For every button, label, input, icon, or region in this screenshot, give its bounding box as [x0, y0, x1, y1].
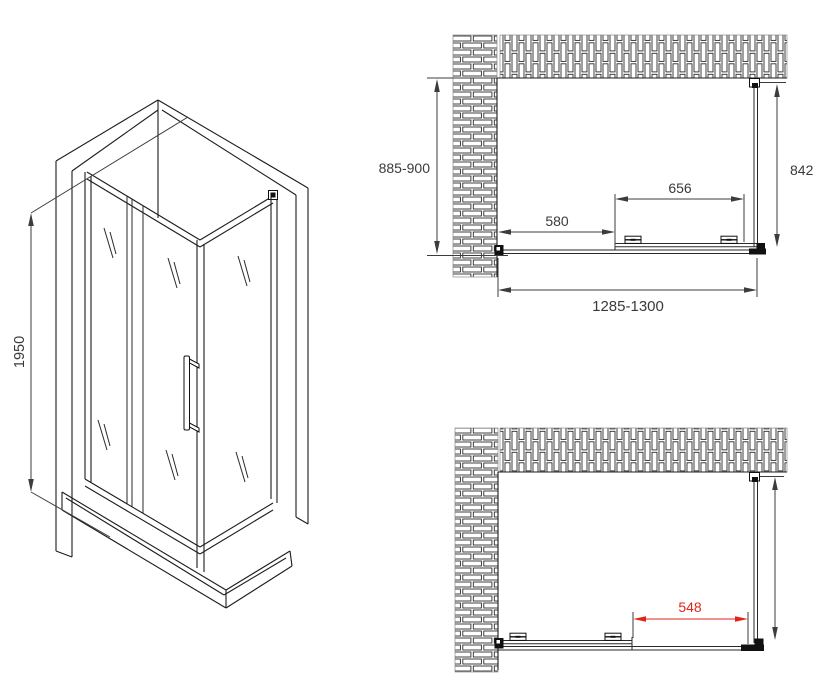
tray-right-cap	[290, 551, 292, 566]
overall-width-dimension-label: 1285-1300	[592, 298, 664, 315]
handle-bar	[184, 356, 190, 430]
top-wall-hatch	[500, 428, 787, 472]
arrow-up-icon	[774, 84, 780, 97]
roller-icon	[625, 236, 641, 243]
left-wall-top-outer-edge	[56, 100, 158, 161]
shower-tray	[62, 492, 292, 608]
side-glass-dimension-label: 842	[790, 162, 814, 178]
tray-front-bottom	[62, 510, 226, 608]
arrow-down-icon	[28, 479, 34, 492]
plan-view-door-closed: 885-900 842 656 580	[379, 35, 814, 315]
dimension-side-glass-unlabeled	[760, 477, 784, 641]
reflection-mark	[98, 420, 107, 450]
left-wall-hatch	[453, 35, 497, 277]
wall-bracket-notch	[497, 247, 501, 251]
dimension-side-glass: 842	[760, 83, 814, 248]
arrow-right-icon	[731, 196, 744, 202]
roller-icon	[510, 633, 526, 640]
dimension-opening-width: 548	[633, 599, 748, 644]
opening-width-dimension-label: 548	[678, 599, 702, 615]
arrow-right-icon	[735, 616, 748, 622]
arrow-down-icon	[774, 234, 780, 247]
roller-axle	[631, 239, 636, 241]
bottom-rails	[85, 479, 273, 554]
left-wall-hatch	[455, 428, 498, 672]
wall-bracket-notch	[497, 640, 501, 644]
arrow-left-icon	[498, 287, 511, 293]
depth-dimension-label: 885-900	[379, 160, 431, 176]
return-bottom-rail-inner	[200, 510, 273, 554]
arrow-left-icon	[633, 616, 646, 622]
arrow-down-icon	[434, 241, 440, 254]
back-walls	[56, 100, 308, 557]
right-wall-top-inner-edge	[162, 110, 296, 195]
corner-bracket-upper	[755, 639, 764, 646]
top-wall-hatch	[500, 35, 787, 78]
arrow-right-icon	[744, 287, 757, 293]
arrow-up-icon	[28, 213, 34, 226]
frame-posts	[85, 172, 277, 572]
arrow-left-icon	[498, 229, 511, 235]
handle-top-mount	[190, 359, 200, 368]
corner-bracket-upper	[757, 243, 766, 249]
door-width-dimension-label: 656	[668, 180, 692, 196]
return-top-rail-inner	[200, 203, 273, 247]
side-glass-panel	[750, 79, 760, 248]
technical-drawing-canvas: 1950	[0, 0, 827, 681]
roller-icon	[721, 236, 737, 243]
arrow-up-icon	[772, 477, 778, 490]
tray-right-bottom	[226, 566, 292, 608]
roller-icon	[605, 633, 621, 640]
shower-enclosure-drawing: 1950	[0, 0, 827, 681]
dimension-fixed-panel: 580	[498, 213, 615, 235]
plan-view-door-open: 548	[455, 428, 787, 672]
arrow-down-icon	[772, 627, 778, 640]
arrow-right-icon	[602, 229, 615, 235]
front-track	[495, 637, 765, 651]
reflection-mark	[236, 452, 245, 482]
reflection-mark	[238, 256, 247, 286]
handle-bottom-mount	[190, 423, 200, 432]
glass-reflection-marks	[98, 228, 250, 482]
height-extension-bottom	[31, 492, 110, 537]
fixed-panel-dimension-label: 580	[545, 213, 569, 229]
tray-front-rim	[62, 492, 226, 590]
right-wall-top-outer-edge	[158, 100, 308, 188]
reflection-mark	[104, 228, 113, 258]
corner-bracket	[741, 645, 764, 652]
dimension-overall-width: 1285-1300	[498, 258, 757, 315]
tray-right-rim	[226, 551, 290, 590]
roller-axle	[727, 239, 732, 241]
wall-profile-core	[752, 477, 758, 482]
isometric-view: 1950	[12, 100, 308, 608]
wall-profile-core	[752, 83, 758, 88]
roller-axle	[516, 636, 521, 638]
return-bottom-rail-outer	[200, 503, 273, 547]
arrow-up-icon	[434, 79, 440, 92]
return-top-rail-outer	[200, 196, 273, 240]
roller-axle	[611, 636, 616, 638]
top-frame	[87, 172, 278, 247]
reflection-mark	[166, 450, 175, 480]
right-wall-bottom-edge	[296, 517, 308, 524]
side-glass-panel	[750, 473, 760, 644]
height-dimension-label: 1950	[12, 336, 28, 368]
reflection-mark	[168, 258, 177, 288]
height-extension-top	[31, 117, 188, 213]
left-wall-bottom-edge	[56, 551, 72, 557]
arrow-left-icon	[615, 196, 628, 202]
corner-bracket	[749, 249, 766, 255]
